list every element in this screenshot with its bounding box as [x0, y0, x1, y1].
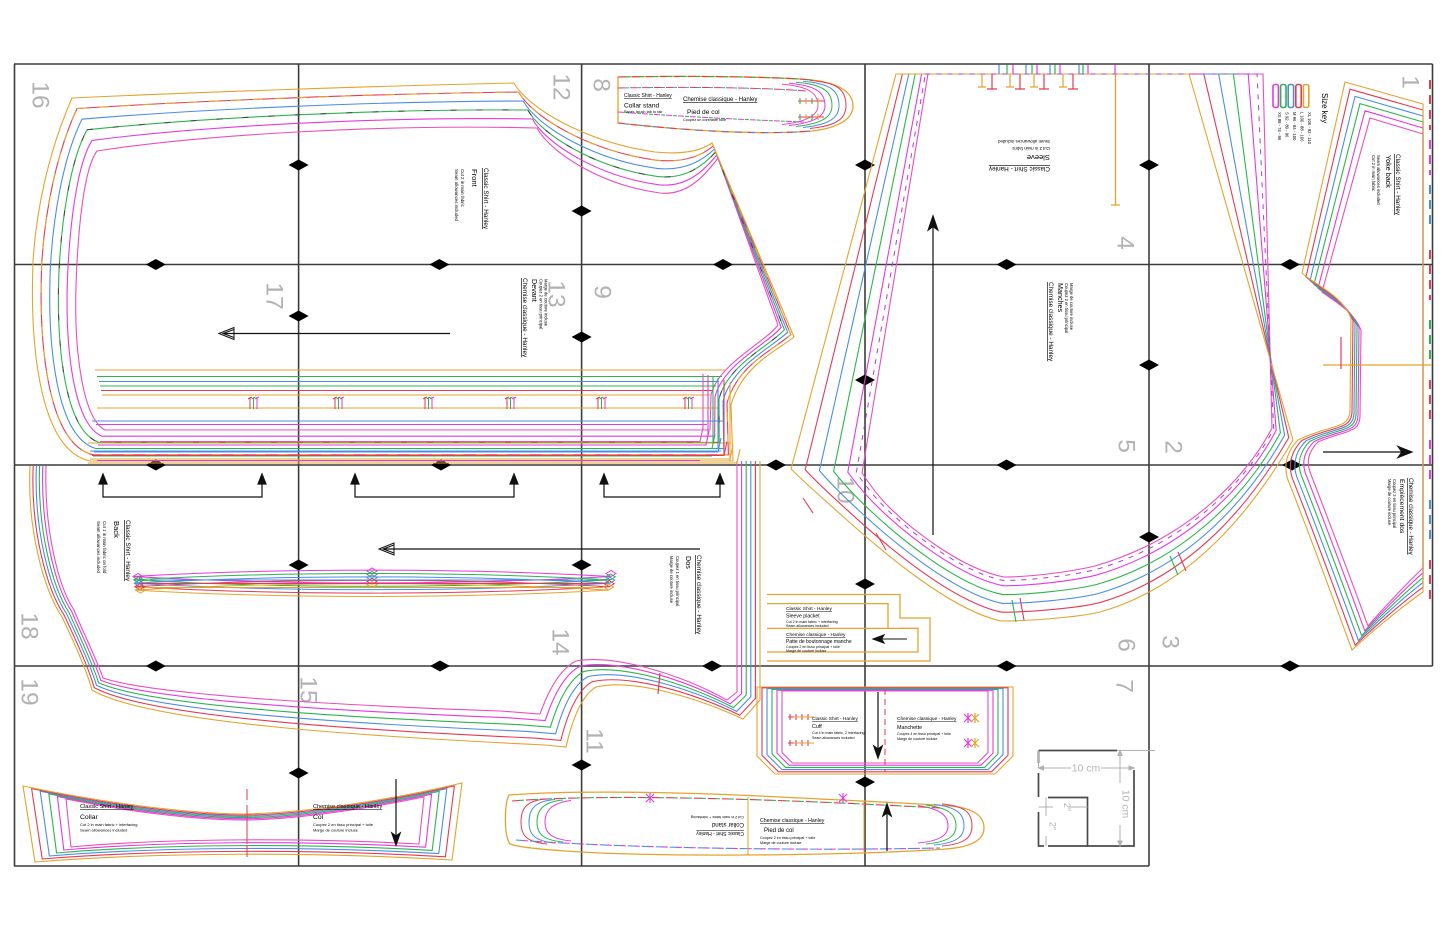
svg-text:10 cm: 10 cm — [1120, 790, 1132, 819]
svg-text:Marge de couture incluse: Marge de couture incluse — [313, 828, 359, 833]
svg-text:3: 3 — [1157, 635, 1184, 649]
svg-text:Coupez 2 en tissu principal +: Coupez 2 en tissu principal + toile — [313, 822, 374, 827]
svg-text:Seam allowances included: Seam allowances included — [80, 828, 127, 833]
svg-text:Coupez 2 en tissu principal +: Coupez 2 en tissu principal + toile — [760, 836, 815, 840]
svg-text:Classic Shirt - Hanley: Classic Shirt - Hanley — [80, 804, 134, 810]
svg-text:16: 16 — [27, 81, 54, 108]
svg-text:Collar stand: Collar stand — [624, 103, 660, 110]
svg-text:Cut 4 in main fabric, 2 interf: Cut 4 in main fabric, 2 interfacing — [812, 731, 865, 735]
svg-text:Marge de couture incluse: Marge de couture incluse — [1387, 479, 1392, 526]
svg-text:9: 9 — [589, 285, 616, 299]
svg-text:Coupez 2 en tissu principal: Coupez 2 en tissu principal — [1064, 283, 1069, 333]
svg-text:Seam allowances included: Seam allowances included — [812, 736, 855, 740]
svg-text:Cut 2 in main fabric + interfa: Cut 2 in main fabric + interfacing — [691, 815, 744, 819]
svg-text:Back: Back — [112, 521, 121, 538]
svg-text:Classic Shirt - Hanley: Classic Shirt - Hanley — [988, 165, 1050, 172]
svg-text:Marge de couture incluse: Marge de couture incluse — [544, 279, 549, 327]
svg-text:Seam allowances included: Seam allowances included — [786, 624, 829, 628]
svg-text:Empiècement dos: Empiècement dos — [1398, 479, 1405, 534]
svg-text:2″: 2″ — [1048, 822, 1058, 831]
svg-text:Manchette: Manchette — [897, 725, 922, 731]
svg-text:Classic Shirt - Hanley: Classic Shirt - Hanley — [482, 168, 489, 230]
svg-text:Collar: Collar — [80, 814, 98, 821]
svg-text:Pied de col: Pied de col — [687, 109, 720, 116]
svg-text:Seam allowances included: Seam allowances included — [96, 521, 101, 574]
svg-text:Marge de couture incluse: Marge de couture incluse — [786, 649, 826, 653]
svg-text:Cuff: Cuff — [812, 724, 822, 730]
svg-text:Col: Col — [313, 814, 324, 821]
svg-text:Chemise classique - Hanley: Chemise classique - Hanley — [695, 555, 702, 635]
svg-text:Classic Shirt - Hanley: Classic Shirt - Hanley — [786, 606, 832, 612]
svg-text:Chemise classique - Hanley: Chemise classique - Hanley — [1047, 282, 1054, 362]
svg-text:8: 8 — [588, 78, 615, 92]
svg-text:4: 4 — [1112, 236, 1139, 250]
svg-text:Yoke back: Yoke back — [1384, 155, 1393, 188]
svg-text:XS 88 - 76 - 96: XS 88 - 76 - 96 — [1277, 112, 1282, 141]
svg-text:L 100 - 88 - 106: L 100 - 88 - 106 — [1300, 112, 1305, 142]
svg-text:Marge de couture incluse: Marge de couture incluse — [897, 737, 937, 741]
svg-text:XL 106 - 92 - 110: XL 106 - 92 - 110 — [1307, 112, 1312, 145]
svg-text:Seam allowances included: Seam allowances included — [997, 139, 1050, 144]
svg-text:Cut 1 in main fabric on fold: Cut 1 in main fabric on fold — [102, 521, 107, 574]
svg-text:2″: 2″ — [1062, 803, 1072, 812]
svg-text:18: 18 — [16, 612, 43, 639]
svg-text:Marge de couture incluse: Marge de couture incluse — [760, 841, 801, 845]
svg-text:5: 5 — [1113, 439, 1140, 453]
svg-text:Devant: Devant — [530, 279, 539, 302]
svg-text:S 92 - 80 - 96: S 92 - 80 - 96 — [1284, 112, 1289, 138]
svg-text:11: 11 — [581, 728, 608, 753]
svg-text:14: 14 — [547, 628, 574, 655]
svg-text:Pied de col: Pied de col — [764, 828, 794, 834]
svg-text:Classic Shirt - Hanley: Classic Shirt - Hanley — [624, 93, 672, 99]
svg-text:Marge de couture incluse: Marge de couture incluse — [1069, 283, 1074, 331]
svg-text:Sleeve placket: Sleeve placket — [786, 614, 820, 620]
svg-text:Chemise classique - Hanley: Chemise classique - Hanley — [760, 818, 825, 824]
svg-text:Classic Shirt - Hanley: Classic Shirt - Hanley — [696, 830, 744, 836]
svg-text:12: 12 — [548, 73, 575, 100]
svg-text:Coupez un contrasté toile: Coupez un contrasté toile — [683, 118, 726, 122]
svg-text:19: 19 — [16, 678, 43, 705]
svg-text:Coupez 1 en tissu principal: Coupez 1 en tissu principal — [675, 556, 680, 606]
svg-text:Chemise classique - Hanley: Chemise classique - Hanley — [313, 804, 383, 810]
svg-text:Paper, brush tab to tab: Paper, brush tab to tab — [624, 110, 662, 114]
svg-text:Classic Shirt - Hanley: Classic Shirt - Hanley — [812, 716, 858, 722]
svg-text:Front: Front — [470, 169, 479, 188]
svg-text:Cut 2 in main fabric + interfa: Cut 2 in main fabric + interfacing — [80, 822, 137, 827]
svg-text:Size key: Size key — [1320, 93, 1329, 123]
svg-text:Chemise classique - Hanley: Chemise classique - Hanley — [897, 716, 957, 722]
svg-text:Seam allowances included: Seam allowances included — [454, 169, 459, 222]
svg-text:15: 15 — [295, 676, 322, 703]
svg-text:Classic Shirt - Hanley: Classic Shirt - Hanley — [1394, 154, 1401, 216]
svg-text:Sleeve: Sleeve — [1027, 153, 1050, 162]
svg-text:10 cm: 10 cm — [1072, 763, 1101, 775]
svg-text:Chemise classique - Hanley: Chemise classique - Hanley — [786, 632, 846, 638]
svg-text:Manches: Manches — [1056, 283, 1065, 313]
svg-text:2: 2 — [1160, 440, 1187, 454]
svg-text:Cut 2 in main fabric: Cut 2 in main fabric — [1011, 146, 1050, 151]
svg-text:Cut 2 in main fabric: Cut 2 in main fabric — [1371, 155, 1376, 191]
svg-text:7: 7 — [1111, 679, 1138, 693]
svg-text:6: 6 — [1113, 638, 1140, 652]
svg-text:Coupez 2 en tissu principal: Coupez 2 en tissu principal — [539, 279, 544, 329]
svg-text:Marge de couture incluse: Marge de couture incluse — [669, 556, 674, 604]
svg-text:Dos: Dos — [684, 556, 693, 569]
svg-text:1: 1 — [1397, 75, 1424, 89]
svg-text:Classic Shirt - Hanley: Classic Shirt - Hanley — [124, 520, 131, 582]
svg-text:Coupez 4 en tissu principal +: Coupez 4 en tissu principal + toile — [897, 732, 951, 736]
svg-text:Collar stand: Collar stand — [712, 821, 744, 827]
svg-text:17: 17 — [261, 282, 288, 309]
svg-text:Cut 2 in main fabric: Cut 2 in main fabric — [460, 169, 465, 208]
svg-text:Chemise classique - Hanley: Chemise classique - Hanley — [683, 97, 757, 103]
svg-text:M 96 - 84 - 100: M 96 - 84 - 100 — [1292, 112, 1297, 141]
svg-text:Chemise classique - Hanley: Chemise classique - Hanley — [521, 278, 528, 358]
svg-text:Chemise classique - Hanley: Chemise classique - Hanley — [1407, 478, 1414, 556]
